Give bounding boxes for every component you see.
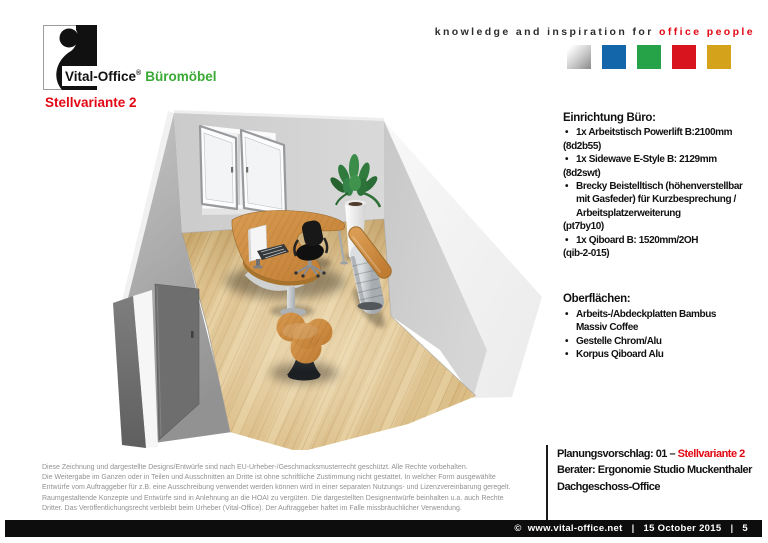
surfaces-list: Arbeits-/Abdeckplatten BambusMassiv Coff… [563, 308, 768, 362]
color-square [567, 45, 591, 69]
tagline: knowledge and inspiration for office peo… [435, 26, 755, 38]
color-square [602, 45, 626, 69]
logo-wordmark: Vital-Office®Büromöbel [62, 66, 219, 86]
list-line: (8d2b55) [563, 140, 768, 153]
list-line: Die Weitergabe im Ganzen oder in Teilen … [42, 473, 547, 483]
footer-separator: | [632, 523, 635, 534]
list-line: (pt7by10) [563, 220, 768, 233]
proposal-line1: Planungsvorschlag: 01 – Stellvariante 2 [557, 446, 765, 462]
door-handle [191, 331, 194, 338]
list-line: (qib-2-015) [563, 247, 768, 260]
furnishing-title: Einrichtung Büro: [563, 112, 768, 125]
footer-date: 15 October 2015 [644, 523, 722, 534]
proposal-variant: Stellvariante 2 [678, 448, 745, 460]
document-page: Vital-Office®Büromöbel knowledge and ins… [0, 0, 768, 543]
list-line: Entwürfe vom Auftraggeber für z.B. eine … [42, 483, 547, 493]
window-handle [231, 167, 233, 173]
logo-suffix-text: Büromöbel [145, 69, 216, 84]
list-line: Diese Zeichnung und dargestellte Designs… [42, 463, 547, 473]
window [200, 125, 286, 215]
list-line: Raumgestaltende Konzepte und Entwürfe si… [42, 494, 547, 504]
furnishing-list: 1x Arbeitstisch Powerlift B:2100mm(8d2b5… [563, 126, 768, 260]
office-room-3d-render [110, 105, 560, 450]
tagline-black: knowledge and inspiration for [435, 26, 654, 38]
footer-page-number: 5 [742, 523, 748, 534]
color-square [637, 45, 661, 69]
legal-notice: Diese Zeichnung und dargestellte Designs… [42, 463, 547, 514]
list-line: Arbeits-/Abdeckplatten Bambus [563, 308, 768, 321]
surfaces-title: Oberflächen: [563, 293, 768, 306]
proposal-prefix: Planungsvorschlag: 01 – [557, 448, 678, 460]
list-line: Gestelle Chrom/Alu [563, 335, 768, 348]
footer-separator: | [730, 523, 733, 534]
proposal-line2: Berater: Ergonomie Studio Muckenthaler [557, 462, 765, 478]
brand-color-squares [567, 45, 731, 69]
list-line: (8d2swt) [563, 167, 768, 180]
proposal-line3: Dachgeschoss-Office [557, 479, 765, 495]
list-line: Dritter. Das Veröffentlichungsrecht verb… [42, 504, 547, 514]
cabinet-base [358, 302, 383, 310]
copyright-symbol: © [514, 523, 521, 534]
list-line: 1x Sidewave E-Style B: 2129mm [563, 153, 768, 166]
list-line: Korpus Qiboard Alu [563, 348, 768, 361]
proposal-block: Planungsvorschlag: 01 – Stellvariante 2 … [557, 446, 765, 495]
tagline-red: office people [659, 26, 755, 38]
registered-mark: ® [136, 70, 141, 77]
color-square [672, 45, 696, 69]
list-line: 1x Arbeitstisch Powerlift B:2100mm [563, 126, 768, 139]
list-line: Arbeitsplatzerweiterung [563, 207, 768, 220]
list-line: mit Gasfeder) für Kurzbesprechung / [563, 193, 768, 206]
color-square [707, 45, 731, 69]
footer-bar: © www.vital-office.net | 15 October 2015… [5, 520, 762, 537]
list-line: Brecky Beistelltisch (höhenverstellbar [563, 180, 768, 193]
logo-brand-text: Vital-Office [65, 69, 136, 84]
surfaces-block: Oberflächen: Arbeits-/Abdeckplatten Bamb… [563, 293, 768, 361]
footer-url: www.vital-office.net [528, 523, 623, 534]
window-casement-right [241, 130, 286, 215]
list-line: 1x Qiboard B: 1520mm/2OH [563, 234, 768, 247]
window-casement-left [200, 126, 237, 209]
list-line: Massiv Coffee [563, 321, 768, 334]
spec-panel: Einrichtung Büro: 1x Arbeitstisch Powerl… [563, 112, 768, 362]
window-handle [246, 167, 248, 173]
